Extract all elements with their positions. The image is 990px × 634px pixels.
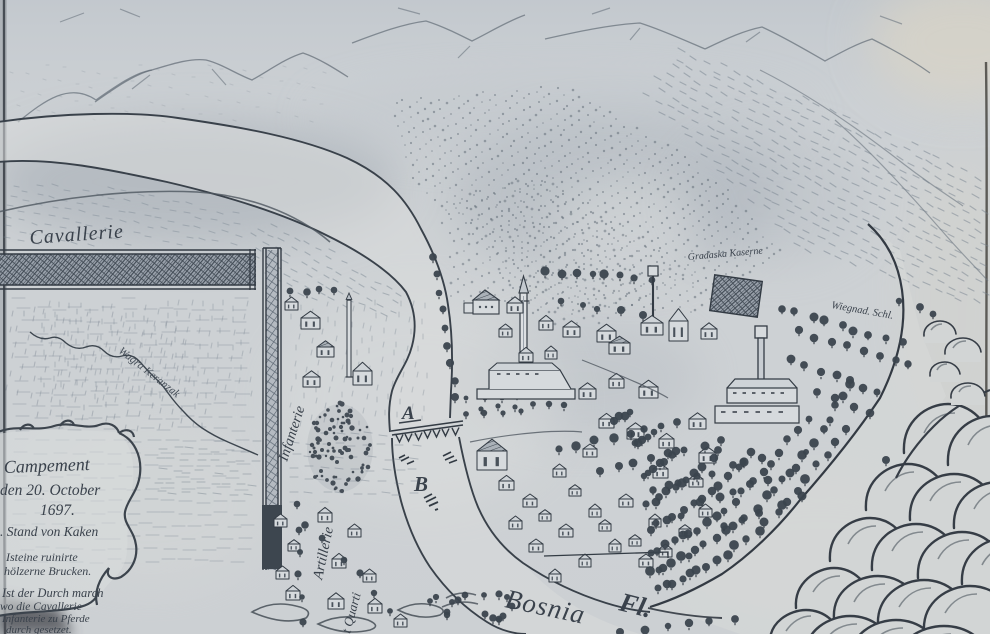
svg-text:B: B [413, 472, 428, 496]
svg-text:den 20. October: den 20. October [0, 482, 101, 499]
svg-text:Ist der Durch march: Ist der Durch march [1, 586, 104, 600]
svg-text:durch gesetzet.: durch gesetzet. [6, 624, 72, 634]
svg-text:wo die Cavallerie: wo die Cavallerie [0, 601, 82, 613]
svg-text:Isteine ruinirte: Isteine ruinirte [5, 550, 78, 564]
svg-text:Campement: Campement [3, 454, 91, 477]
svg-text:. Stand von Kaken: . Stand von Kaken [0, 524, 98, 539]
svg-text:hölzerne Brucken.: hölzerne Brucken. [4, 564, 91, 578]
svg-text:1697.: 1697. [40, 502, 75, 519]
